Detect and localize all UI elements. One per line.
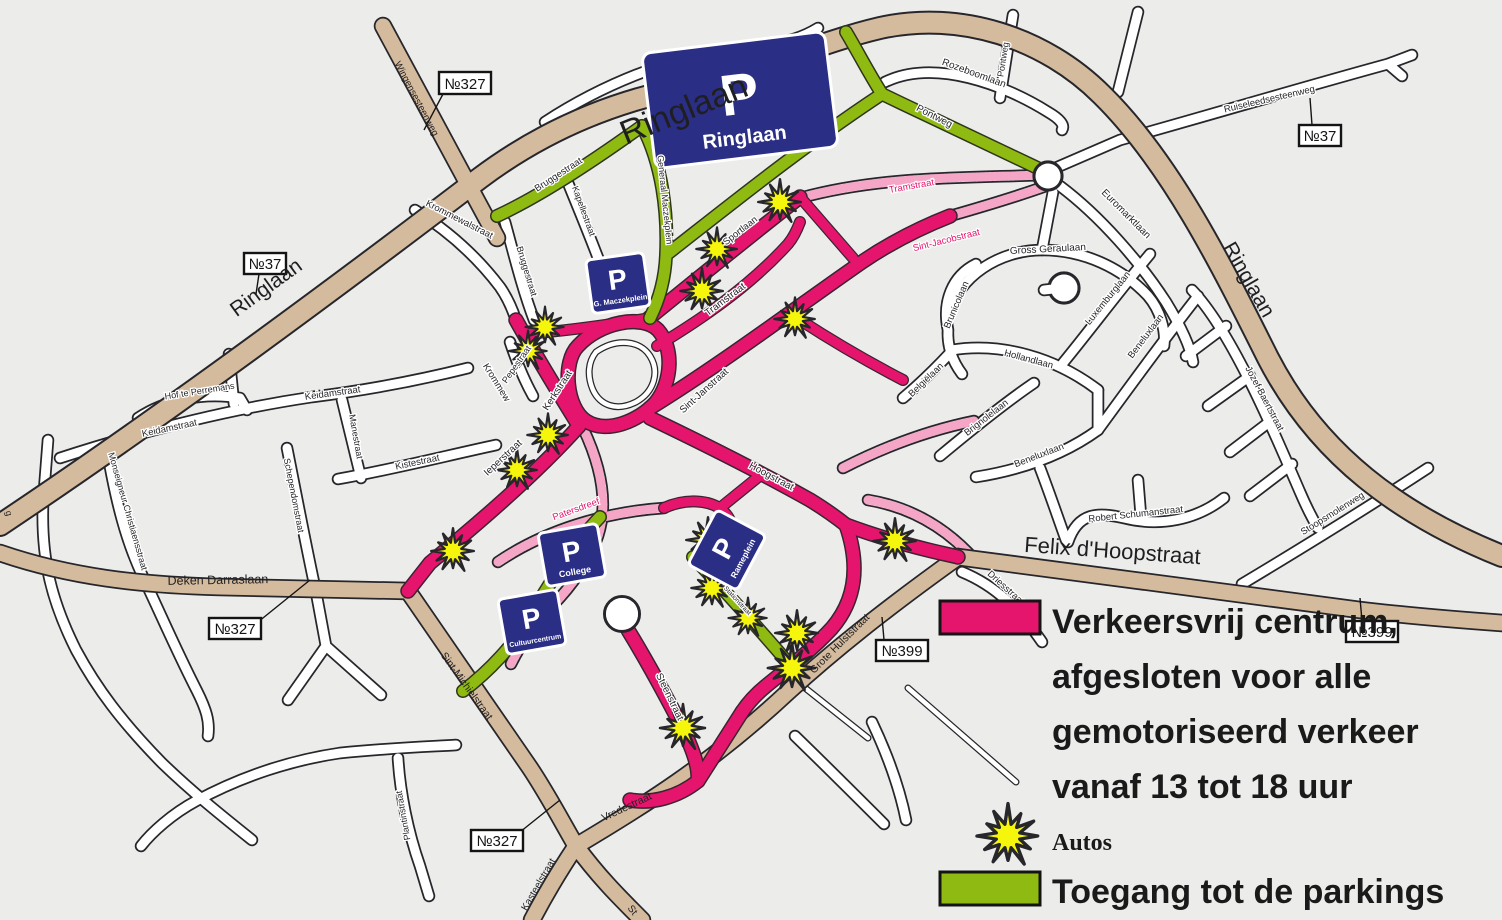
legend-text: afgesloten voor alle bbox=[1052, 658, 1371, 696]
legend-text: vanaf 13 tot 18 uur bbox=[1052, 768, 1352, 806]
street-label: Belgiëlaan bbox=[906, 361, 946, 400]
svg-text:№327: №327 bbox=[444, 76, 485, 93]
map-canvas: P Ringlaan P G. Maczekplein P College P … bbox=[0, 0, 1502, 920]
roundabout bbox=[1034, 162, 1062, 190]
street-label: Deken Darraslaan bbox=[167, 572, 268, 588]
legend: Verkeersvrij centrum, afgesloten voor al… bbox=[940, 601, 1444, 911]
city-traffic-map: P Ringlaan P G. Maczekplein P College P … bbox=[0, 0, 1502, 920]
parking-sign-cultuurcentrum: P Cultuurcentrum bbox=[498, 589, 567, 655]
legend-text: gemotoriseerd verkeer bbox=[1052, 713, 1419, 751]
street-label: Luxemburglaan bbox=[1083, 270, 1133, 328]
svg-text:№399: №399 bbox=[881, 643, 922, 660]
svg-text:№327: №327 bbox=[476, 833, 517, 850]
legend-parking-label: Toegang tot de parkings bbox=[1052, 873, 1444, 911]
legend-text: Verkeersvrij centrum, bbox=[1052, 603, 1398, 641]
legend-pedestrian-swatch bbox=[940, 601, 1040, 634]
legend-autos-label: Autos bbox=[1052, 830, 1112, 856]
parking-sign-maczekplein: P G. Maczekplein bbox=[586, 252, 651, 314]
parking-sign-college: P College bbox=[538, 523, 606, 587]
autos-star-icon bbox=[873, 518, 916, 561]
street-label: Ruiseleedsesteenweg bbox=[1223, 84, 1316, 116]
parking-sign-rameplein: P Rameplein bbox=[688, 509, 767, 590]
street-label: Kistestraat bbox=[394, 452, 441, 472]
svg-text:№327: №327 bbox=[214, 621, 255, 638]
svg-text:№37: №37 bbox=[1304, 128, 1337, 145]
badge-n37-right: №37 bbox=[1299, 98, 1341, 146]
legend-autos-star-icon bbox=[977, 804, 1038, 864]
legend-parking-swatch bbox=[940, 872, 1040, 905]
